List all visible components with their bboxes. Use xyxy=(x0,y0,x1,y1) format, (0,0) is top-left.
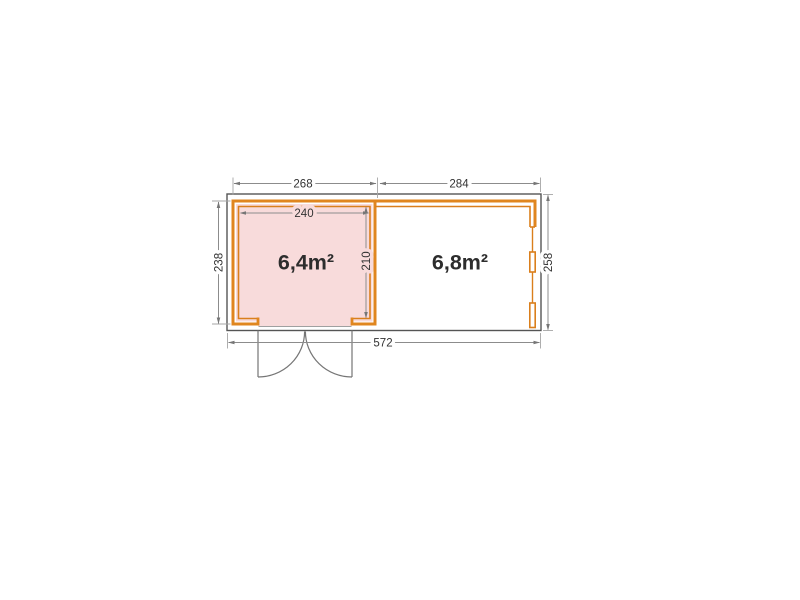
dimension-572: 572 xyxy=(228,333,541,350)
right-room-area-label: 6,8m² xyxy=(432,251,488,275)
dimension-258: 258 xyxy=(543,195,555,331)
arrow-left xyxy=(234,182,241,186)
left-room-area-label: 6,4m² xyxy=(278,251,334,275)
floor-plan-svg: 268 284 240 210 xyxy=(0,0,800,600)
arrow-down xyxy=(546,324,550,331)
dimension-label: 238 xyxy=(214,253,226,272)
dimension-label: 572 xyxy=(373,338,392,350)
arrow-left xyxy=(228,341,235,345)
arrow-up xyxy=(217,202,221,209)
dimension-label: 210 xyxy=(361,251,373,270)
floor-plan-canvas: 268 284 240 210 xyxy=(0,0,800,600)
dimension-label: 258 xyxy=(543,253,555,272)
right-wall-segment3 xyxy=(530,303,535,328)
door-swing-arc-left xyxy=(258,332,305,378)
arrow-up xyxy=(546,195,550,202)
dimension-284: 284 xyxy=(380,178,541,193)
right-wall-segment2 xyxy=(530,252,535,272)
dimension-label: 240 xyxy=(294,208,313,220)
door-swing-arc-right xyxy=(305,332,352,378)
arrow-right xyxy=(534,341,541,345)
arrow-right xyxy=(534,182,541,186)
double-door xyxy=(258,331,352,378)
arrow-left xyxy=(380,182,387,186)
dimension-label: 268 xyxy=(293,179,312,191)
dimension-label: 284 xyxy=(449,179,469,191)
arrow-right xyxy=(370,182,377,186)
arrow-down xyxy=(217,318,221,325)
